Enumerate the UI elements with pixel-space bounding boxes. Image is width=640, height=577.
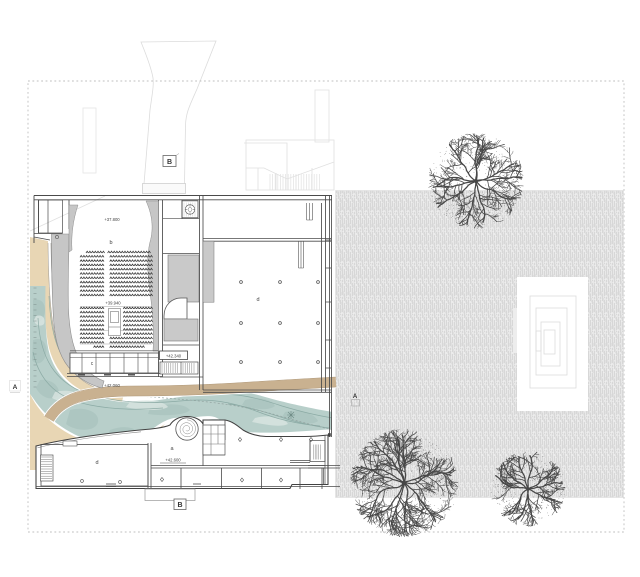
svg-text:A: A — [13, 384, 18, 391]
svg-text:d: d — [256, 297, 259, 303]
svg-text:d: d — [95, 460, 98, 466]
svg-text:b: b — [109, 240, 112, 246]
svg-text:+42.340: +42.340 — [166, 354, 182, 359]
svg-text:+39.940: +39.940 — [105, 301, 121, 306]
svg-text:+42.600: +42.600 — [165, 458, 181, 463]
svg-text:B: B — [167, 159, 172, 166]
svg-text:A: A — [353, 394, 358, 400]
svg-text:+42.060: +42.060 — [104, 383, 121, 388]
svg-text:+37.800: +37.800 — [104, 217, 120, 222]
svg-text:B: B — [177, 502, 182, 509]
